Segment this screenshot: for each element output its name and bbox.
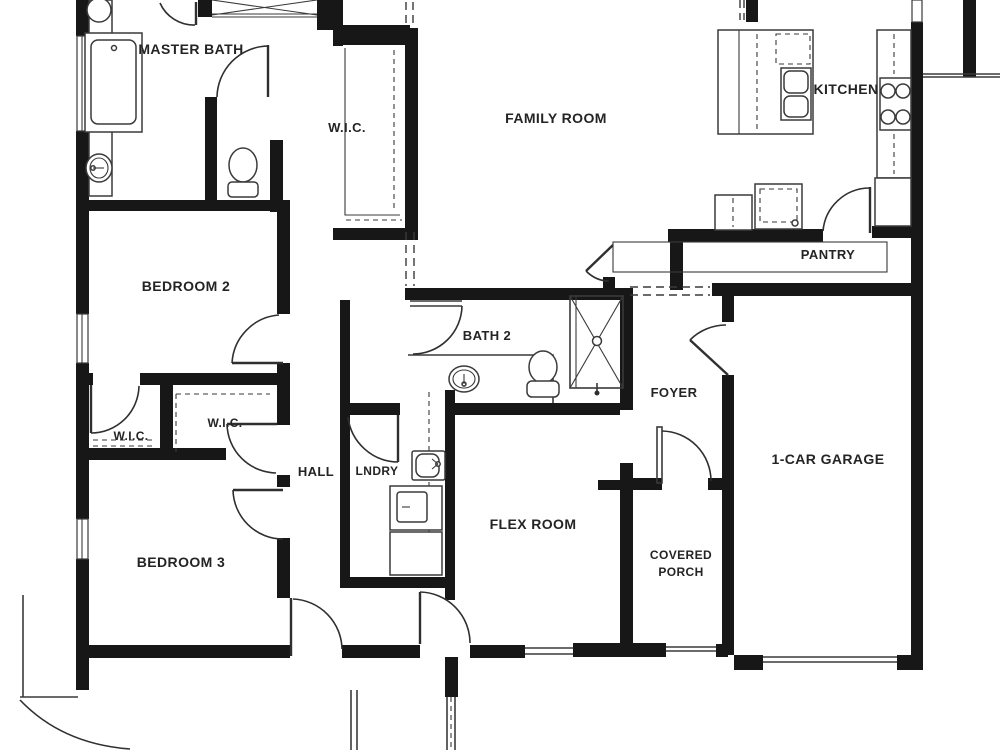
sink-icon (87, 0, 111, 22)
cased-openings (406, 0, 744, 295)
pantry-angled-door (586, 245, 613, 281)
label-family-room: FAMILY ROOM (505, 110, 607, 126)
wic-right-door (227, 424, 277, 473)
master-closet-x (212, 0, 317, 17)
garage-door (763, 657, 897, 662)
label-wic-right: W.I.C. (207, 416, 242, 430)
hall-exterior-door (291, 598, 342, 656)
floor-plan: MASTER BATH W.I.C. FAMILY ROOM KITCHEN P… (0, 0, 1000, 750)
label-bedroom3: BEDROOM 3 (137, 554, 225, 570)
garage-entry-door (690, 325, 728, 375)
kitchen-island (718, 30, 813, 134)
bath2-door (410, 301, 462, 354)
bathtub-icon (85, 33, 142, 132)
front-entry-door (657, 427, 711, 483)
label-wic-master: W.I.C. (328, 120, 366, 135)
label-kitchen: KITCHEN (813, 81, 878, 97)
label-bath2: BATH 2 (463, 328, 511, 343)
label-master-bath: MASTER BATH (138, 41, 243, 57)
laundry-door (348, 415, 398, 462)
floor-plan-canvas: MASTER BATH W.I.C. FAMILY ROOM KITCHEN P… (0, 0, 1000, 750)
label-laundry: LNDRY (356, 464, 399, 478)
washer-icon (390, 486, 442, 530)
refrigerator-icon (875, 178, 911, 226)
label-hall: HALL (298, 464, 334, 479)
porch-edge-line (666, 647, 716, 651)
dryer-icon (390, 532, 442, 575)
toilet-icon (228, 148, 258, 197)
label-flex-room: FLEX ROOM (490, 516, 577, 532)
window-bottom-center (447, 697, 455, 750)
wic-left-door (91, 385, 139, 433)
bedroom2-door (232, 315, 283, 363)
bedroom3-door (233, 490, 283, 539)
label-covered-porch-2: PORCH (658, 565, 703, 579)
window-flex-room (525, 648, 573, 654)
toilet-icon (527, 351, 559, 397)
porch-column-lines (351, 690, 357, 750)
label-garage: 1-CAR GARAGE (772, 451, 885, 467)
double-sink-icon (781, 68, 811, 120)
master-bedroom-door (160, 2, 196, 25)
window-kitchen-top (912, 0, 922, 22)
pantry-counter-appliances (715, 184, 802, 230)
laundry-sink-icon (412, 451, 445, 480)
label-covered-porch-1: COVERED (650, 548, 712, 562)
shower-icon (570, 296, 623, 396)
label-pantry: PANTRY (801, 247, 855, 262)
label-wic-left: W.I.C. (113, 429, 148, 443)
label-foyer: FOYER (651, 385, 698, 400)
kitchen-pantry-door (823, 187, 870, 233)
flex-room-door (420, 592, 470, 644)
cooktop-icon (880, 78, 911, 130)
top-right-patio-line (923, 74, 1000, 77)
kitchen-counter (875, 30, 911, 226)
label-bedroom2: BEDROOM 2 (142, 278, 230, 294)
porch-corner-door (20, 595, 130, 749)
